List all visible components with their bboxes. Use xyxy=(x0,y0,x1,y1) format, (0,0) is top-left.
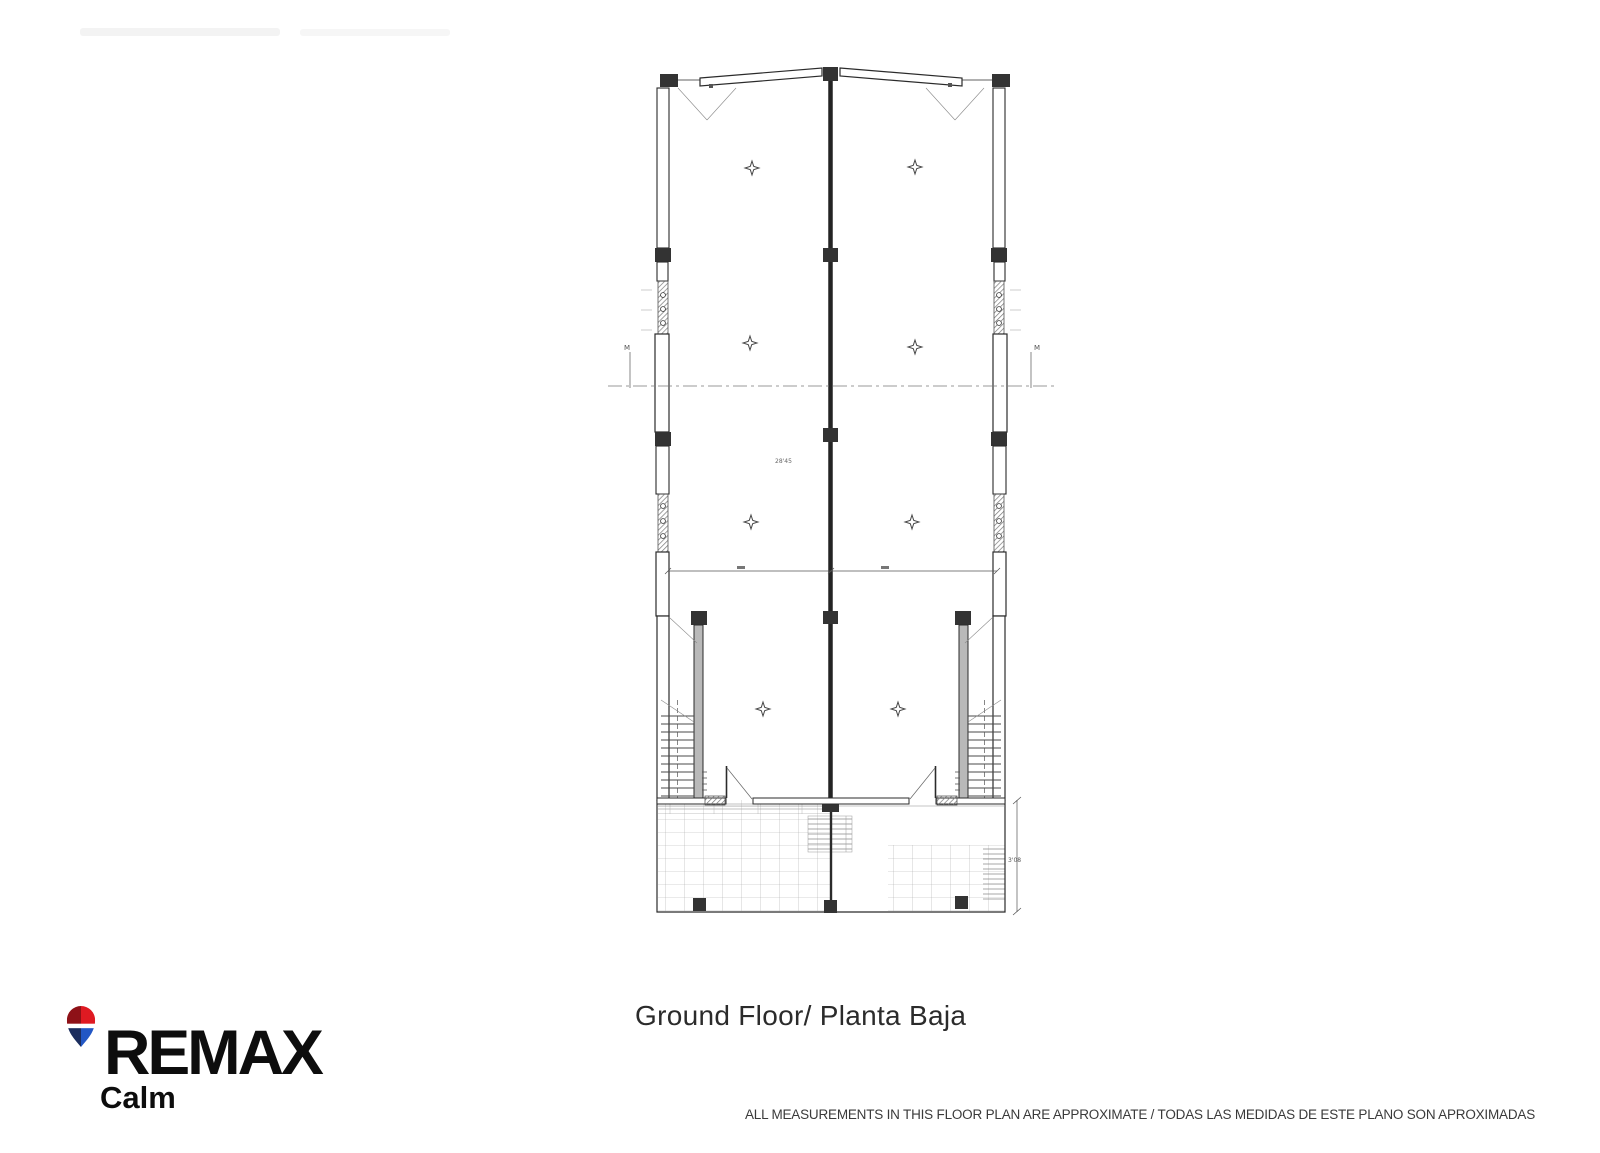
section-marker-right: M xyxy=(1034,344,1040,352)
terrace-tile-grid-left xyxy=(658,800,830,911)
window xyxy=(993,446,1006,494)
wall-column xyxy=(823,611,838,624)
window xyxy=(656,446,669,494)
ridge-column xyxy=(823,67,838,81)
light-symbol xyxy=(905,515,919,529)
measurements-disclaimer: ALL MEASUREMENTS IN THIS FLOOR PLAN ARE … xyxy=(745,1107,1535,1122)
wall-column xyxy=(691,611,707,625)
light-symbol xyxy=(891,702,905,716)
window xyxy=(656,552,669,616)
brand-office-name: Calm xyxy=(100,1080,176,1116)
floor-plan-drawing: M M 28'45 3'08 xyxy=(0,0,1600,1153)
window xyxy=(994,262,1005,281)
door-swing xyxy=(910,768,935,799)
terrace-column xyxy=(693,898,706,911)
light-symbol xyxy=(745,161,759,175)
door-sill xyxy=(705,796,725,805)
wall-column xyxy=(823,248,838,262)
wall-column xyxy=(955,611,971,625)
plan-caption: Ground Floor/ Planta Baja xyxy=(635,1000,966,1032)
remax-logo: REMAX Calm xyxy=(62,1004,362,1119)
window xyxy=(657,262,668,281)
terrace-column xyxy=(824,900,837,913)
window xyxy=(993,552,1006,616)
door-swing xyxy=(727,768,752,799)
rear-wall xyxy=(660,67,1010,120)
wall-column xyxy=(823,428,838,442)
wall-column xyxy=(655,248,671,262)
exterior-wall-left xyxy=(641,88,671,800)
door-sill xyxy=(937,796,957,805)
window xyxy=(655,334,669,432)
wall-column xyxy=(655,432,671,446)
section-marker-left: M xyxy=(624,344,630,352)
remax-balloon-icon xyxy=(64,1006,98,1048)
wall-column xyxy=(991,432,1007,446)
party-wall xyxy=(822,81,839,900)
wall-column xyxy=(991,248,1007,262)
light-symbol xyxy=(756,702,770,716)
interior-width-dimension: 28'45 xyxy=(775,458,792,465)
light-symbol xyxy=(908,340,922,354)
corner-column xyxy=(660,74,678,87)
terrace-depth-dimension: 3'08 xyxy=(1008,857,1021,864)
corner-column xyxy=(992,74,1010,87)
light-symbol xyxy=(743,336,757,350)
window xyxy=(993,334,1007,432)
exterior-wall-right xyxy=(991,88,1021,800)
terrace-side-steps xyxy=(983,848,1005,902)
floor-plan-page: M M 28'45 3'08 Ground Floor/ Planta Baja xyxy=(0,0,1600,1153)
light-symbol xyxy=(908,160,922,174)
terrace-column xyxy=(955,896,968,909)
brand-name: REMAX xyxy=(104,1017,321,1089)
light-symbol xyxy=(744,515,758,529)
